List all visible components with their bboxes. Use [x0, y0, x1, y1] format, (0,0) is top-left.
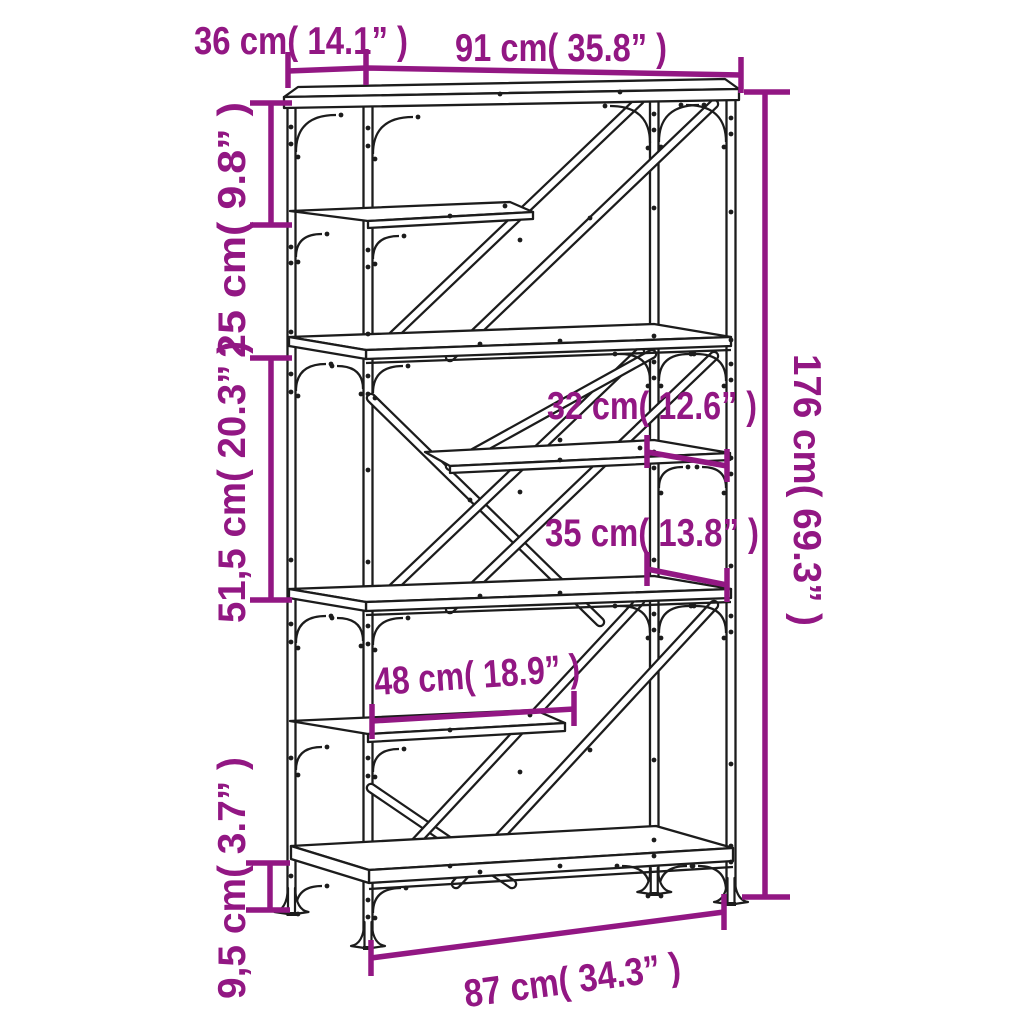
half-shelf-48 — [290, 710, 565, 742]
bottom-shelf — [291, 826, 733, 889]
label-depth-top: 36 cm( 14.1” ) — [194, 20, 408, 63]
label-width-top: 91 cm( 35.8” ) — [455, 27, 667, 70]
label-top-section-height: 25 cm( 9.8” ) — [211, 102, 254, 358]
post-back-left — [288, 98, 296, 914]
top-board — [284, 79, 739, 108]
label-middle-section-height: 51,5 cm( 20.3” ) — [211, 341, 254, 623]
dim-line-51-5 — [250, 358, 292, 600]
label-shelf-depth-lower: 35 cm( 13.8” ) — [545, 512, 759, 555]
dim-line-total-height — [742, 92, 790, 897]
label-foot-height: 9,5 cm( 3.7” ) — [211, 757, 254, 999]
label-shelf-depth-upper: 32 cm( 12.6” ) — [547, 385, 757, 428]
post-back-right — [650, 90, 659, 894]
diagram-canvas: 36 cm( 14.1” ) 91 cm( 35.8” ) 25 cm( 9.8… — [0, 0, 1024, 1024]
half-shelf-upper — [290, 202, 533, 228]
shelf-3 — [289, 576, 731, 615]
dim-line-25 — [250, 103, 292, 225]
label-total-height: 176 cm( 69.3” ) — [785, 354, 828, 626]
bookshelf-dimension-diagram: 36 cm( 14.1” ) 91 cm( 35.8” ) 25 cm( 9.8… — [0, 0, 1024, 1024]
shelf-2 — [289, 324, 731, 363]
label-width-bottom: 87 cm( 34.3” ) — [461, 945, 683, 1016]
